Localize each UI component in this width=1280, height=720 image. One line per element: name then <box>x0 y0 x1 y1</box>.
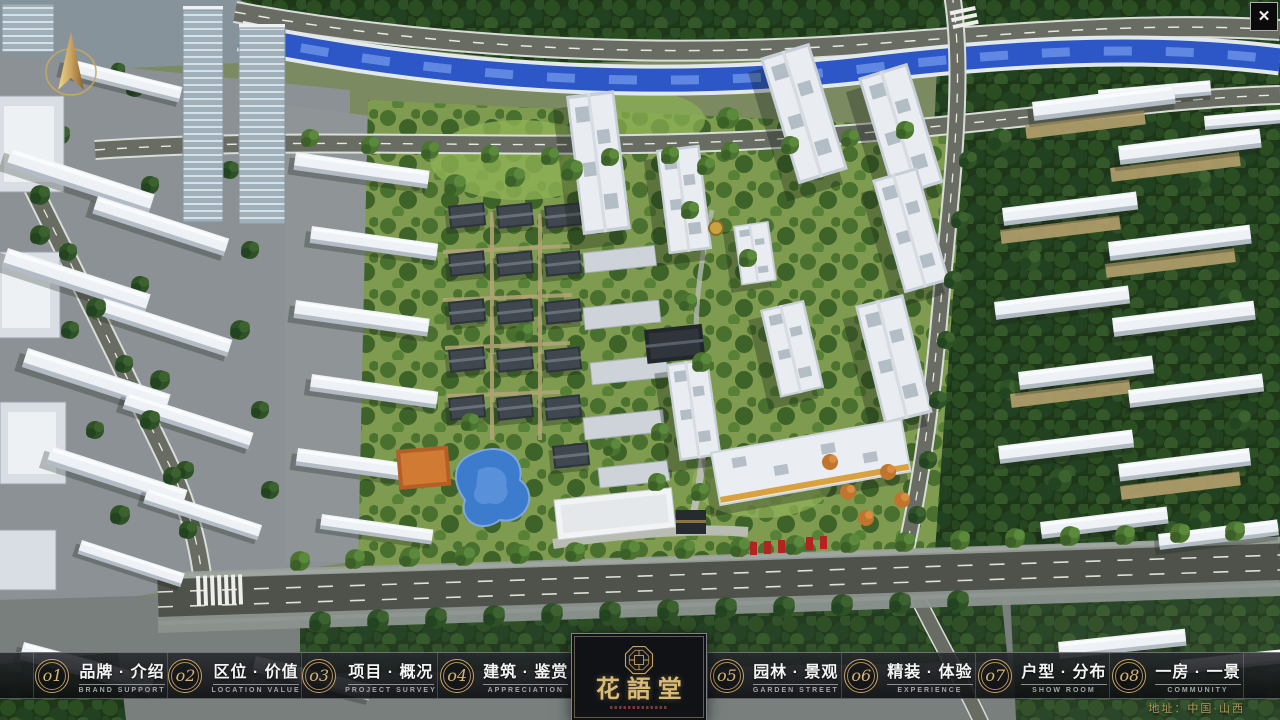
nav-item-interior-experience[interactable]: o6 精装 · 体验EXPERIENCE <box>841 653 975 698</box>
nav-number: o4 <box>447 668 467 684</box>
nav-item-brand-intro[interactable]: o1 品牌 · 介绍BRAND SUPPORT <box>33 653 167 698</box>
nav-label-zh: 精装 · 体验 <box>887 658 972 685</box>
nav-number-badge: o7 <box>978 659 1012 693</box>
amenity-building <box>396 445 451 489</box>
nav-number: o8 <box>1119 668 1139 684</box>
nav-item-landscape[interactable]: o5 园林 · 景观GARDEN STREET <box>707 653 841 698</box>
close-icon: ✕ <box>1258 9 1271 24</box>
nav-label-en: GARDEN STREET <box>753 687 839 694</box>
nav-number: o5 <box>717 668 737 684</box>
nav-number: o1 <box>43 668 63 684</box>
nav-number-badge: o6 <box>844 659 878 693</box>
nav-label-en: COMMUNITY <box>1167 687 1228 694</box>
nav-number: o2 <box>176 668 196 684</box>
nav-number: o6 <box>851 668 871 684</box>
nav-label-en: BRAND SUPPORT <box>78 687 165 694</box>
nav-item-project-overview[interactable]: o3 项目 · 概况PROJECT SURVEY <box>301 653 437 698</box>
nav-number-badge: o1 <box>35 659 69 693</box>
nav-spacer-right <box>1243 653 1280 698</box>
logo-subtext <box>610 706 668 709</box>
nav-number: o3 <box>309 668 329 684</box>
nav-item-room-view[interactable]: o8 一房 · 一景COMMUNITY <box>1109 653 1243 698</box>
nav-label-en: PROJECT SURVEY <box>345 687 437 694</box>
nav-label-en: APPRECIATION <box>488 687 564 694</box>
nav-spacer-left <box>0 653 33 698</box>
nav-label-zh: 建筑 · 鉴赏 <box>483 658 568 685</box>
nav-number: o7 <box>985 668 1005 684</box>
site-plan-render <box>0 0 1280 720</box>
nav-number-badge: o8 <box>1112 659 1146 693</box>
close-button[interactable]: ✕ <box>1250 2 1278 31</box>
nav-label-zh: 区位 · 价值 <box>213 658 298 685</box>
nav-label-zh: 项目 · 概况 <box>348 658 433 685</box>
aerial-site-map <box>0 0 1280 720</box>
nav-number-badge: o5 <box>710 659 744 693</box>
logo-panel[interactable]: 花語堂 <box>571 633 707 720</box>
nav-item-floorplan-distribution[interactable]: o7 户型 · 分布SHOW ROOM <box>975 653 1109 698</box>
logo-name: 花語堂 <box>589 677 689 701</box>
gold-sculpture <box>709 221 723 235</box>
nav-label-zh: 一房 · 一景 <box>1155 658 1240 685</box>
nav-number-badge: o3 <box>302 659 336 693</box>
bottom-nav-bar: o1 品牌 · 介绍BRAND SUPPORT o2 区位 · 价值LOCATI… <box>0 652 1280 699</box>
nav-label-en: EXPERIENCE <box>897 687 962 694</box>
logo-emblem-icon <box>624 645 654 675</box>
nav-item-location-value[interactable]: o2 区位 · 价值LOCATION VALUE <box>167 653 301 698</box>
nav-label-en: SHOW ROOM <box>1032 687 1096 694</box>
presentation-stage: ✕ o1 品牌 · 介绍BRAND SUPPORT o2 区位 · 价值LOCA… <box>0 0 1280 720</box>
nav-label-zh: 园林 · 景观 <box>753 658 838 685</box>
nav-number-badge: o2 <box>168 659 202 693</box>
nav-item-architecture[interactable]: o4 建筑 · 鉴赏APPRECIATION <box>437 653 571 698</box>
nav-label-zh: 户型 · 分布 <box>1021 658 1106 685</box>
nav-label-en: LOCATION VALUE <box>211 687 300 694</box>
project-address: 地址：中国·山西 <box>1148 700 1245 716</box>
nav-label-zh: 品牌 · 介绍 <box>79 658 164 685</box>
nav-number-badge: o4 <box>440 659 474 693</box>
entrance-gate <box>676 510 706 534</box>
